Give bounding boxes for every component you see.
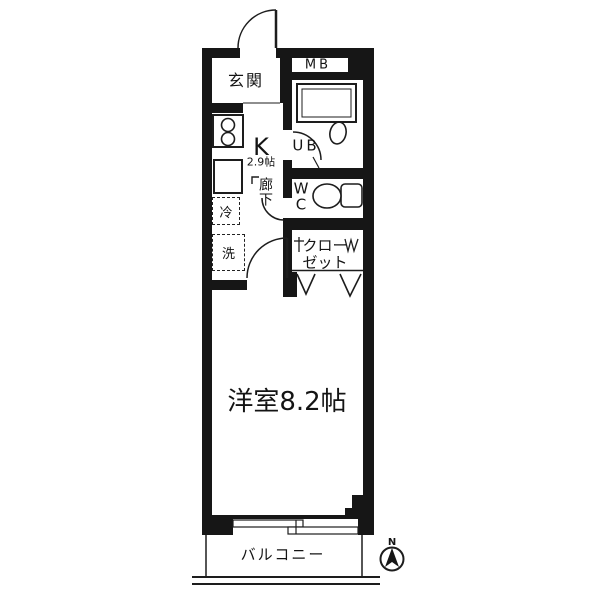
floor-plan-symbols	[0, 0, 600, 600]
closet-label-line2: ゼット	[302, 256, 347, 271]
room-door-swing-icon	[247, 238, 287, 278]
gas-stove-icon	[213, 115, 243, 147]
kitchen-sink-icon	[214, 160, 242, 193]
refrigerator-label: 冷	[219, 202, 232, 221]
floor-plan-page: { "colors": { "background": "#ffffff", "…	[0, 0, 600, 600]
washer-space: 洗	[212, 234, 245, 271]
toilet-label: WC	[294, 181, 309, 212]
entrance-door-swing-icon	[238, 10, 276, 48]
north-compass-icon	[381, 548, 404, 571]
meter-box-label: MB	[305, 59, 331, 72]
kitchen-size-label: 2.9帖	[247, 157, 276, 168]
closet-label-line1: クロー	[302, 239, 347, 254]
corridor-label: 廊下	[258, 178, 275, 207]
washbasin-icon	[328, 121, 348, 146]
western-room-label: 洋室8.2帖	[227, 389, 346, 415]
bathtub-icon	[297, 84, 356, 122]
toilet-icon	[313, 184, 362, 208]
north-label: N	[388, 538, 396, 548]
balcony-label: バルコニー	[241, 548, 326, 563]
unit-bath-label: UB	[292, 139, 319, 154]
entrance-label: 玄関	[228, 73, 264, 89]
sliding-window-icon	[233, 520, 358, 534]
washer-label: 洗	[222, 243, 235, 262]
refrigerator-space: 冷	[212, 197, 240, 225]
